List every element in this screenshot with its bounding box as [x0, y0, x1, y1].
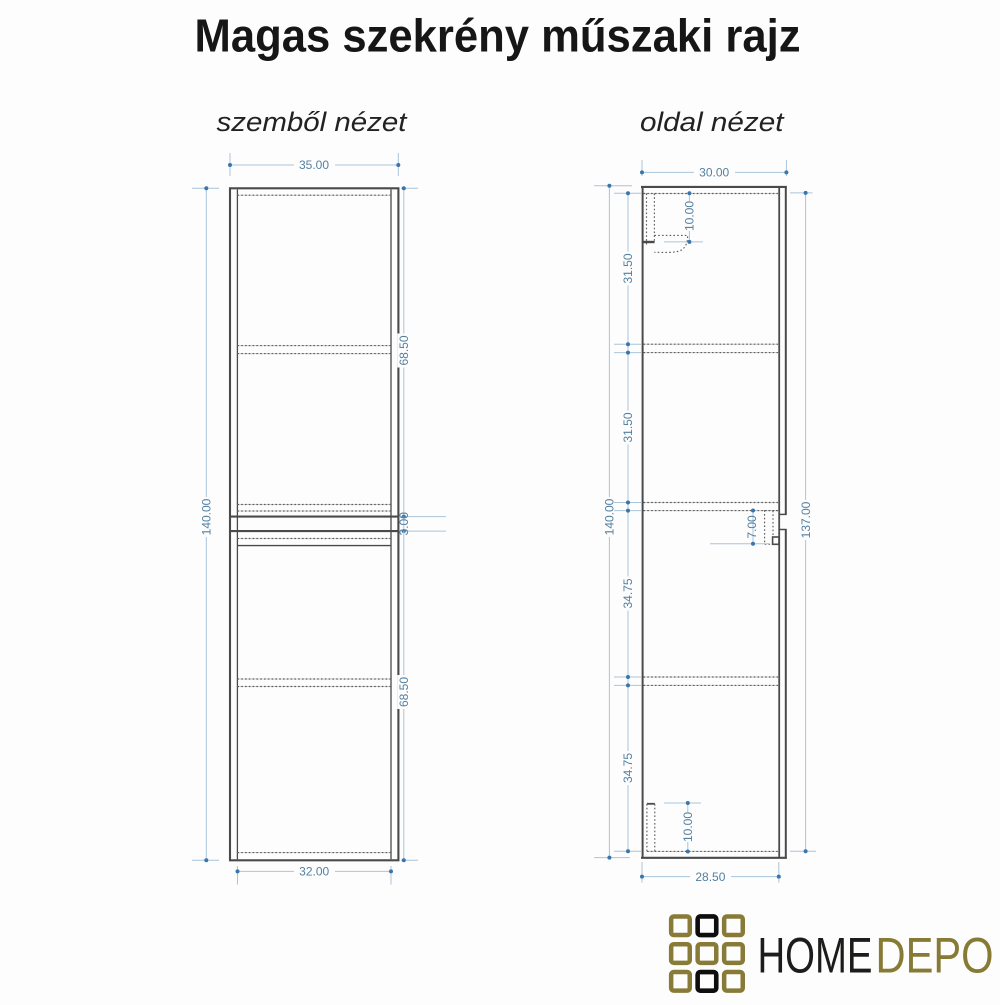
svg-text:31.50: 31.50 — [621, 412, 635, 442]
svg-text:137.00: 137.00 — [799, 501, 813, 538]
svg-text:34.75: 34.75 — [621, 753, 635, 783]
svg-text:32.00: 32.00 — [299, 865, 329, 879]
svg-text:34.75: 34.75 — [621, 578, 635, 608]
svg-text:10.00: 10.00 — [683, 201, 697, 231]
svg-text:szemből nézet: szemből nézet — [217, 107, 409, 137]
svg-text:68.50: 68.50 — [397, 335, 411, 365]
svg-text:30.00: 30.00 — [699, 166, 729, 180]
svg-text:140.00: 140.00 — [603, 498, 617, 535]
svg-text:DEPO: DEPO — [876, 928, 994, 984]
svg-text:7.00: 7.00 — [745, 515, 759, 539]
svg-text:oldal nézet: oldal nézet — [640, 107, 785, 137]
svg-text:HOME: HOME — [758, 928, 873, 984]
svg-text:35.00: 35.00 — [299, 158, 329, 172]
svg-text:Magas szekrény műszaki rajz: Magas szekrény műszaki rajz — [195, 10, 801, 62]
svg-text:31.50: 31.50 — [621, 253, 635, 283]
svg-text:10.00: 10.00 — [681, 812, 695, 842]
svg-text:28.50: 28.50 — [695, 870, 725, 884]
svg-text:140.00: 140.00 — [200, 498, 214, 535]
svg-text:68.50: 68.50 — [397, 677, 411, 707]
